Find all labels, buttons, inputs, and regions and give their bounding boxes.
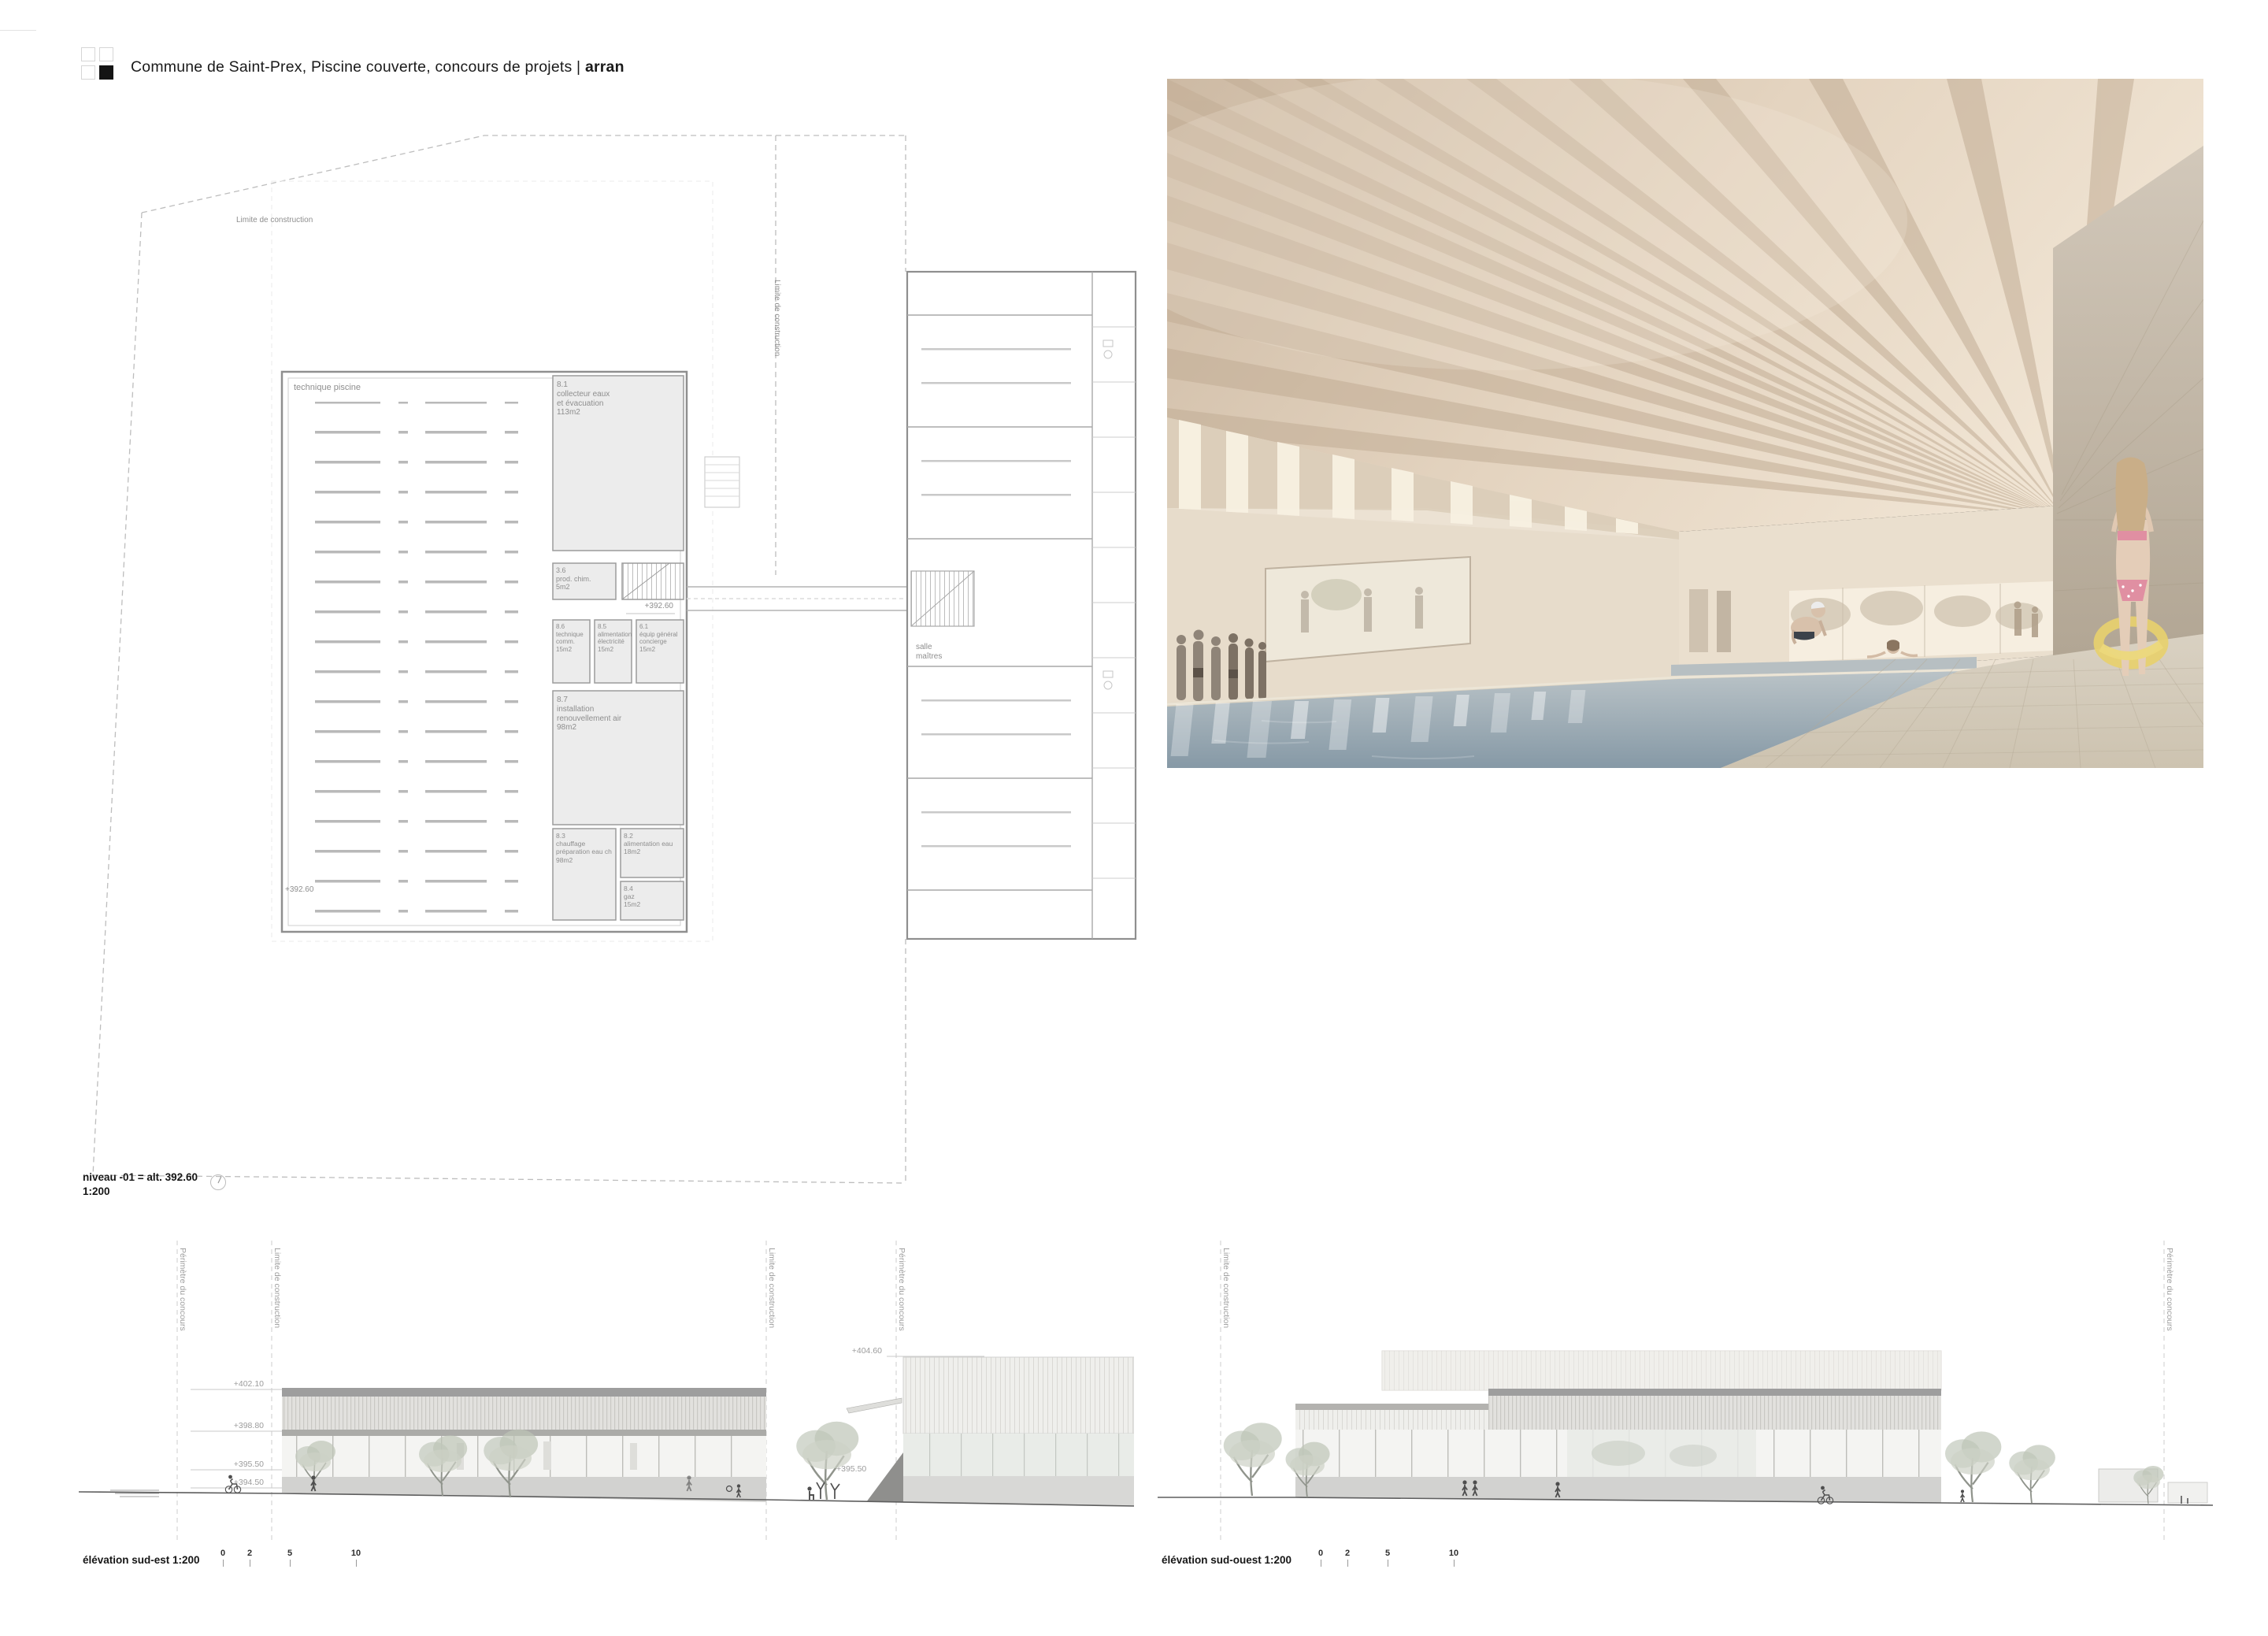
level-394-50: +394.50	[234, 1478, 264, 1487]
sitting-person	[807, 1486, 813, 1500]
guide-labels: Limite de construction Périmètre du conc…	[1221, 1248, 2174, 1331]
steps	[110, 1490, 159, 1497]
stairs	[622, 563, 684, 599]
plan-caption-line1: niveau -01 = alt. 392.60	[83, 1170, 198, 1185]
door	[1717, 591, 1731, 652]
guide-label: Périmètre du concours	[2165, 1248, 2174, 1331]
interior-rendering	[1167, 79, 2203, 768]
plan-caption: niveau -01 = alt. 392.60 1:200	[83, 1170, 198, 1199]
scale-tick: 2	[1338, 1549, 1357, 1558]
limite-label-right: Limite de construction	[772, 280, 781, 356]
room-label-6-1: 6.1 équip général concierge 15m2	[639, 623, 684, 653]
guide-label: Limite de construction	[272, 1248, 282, 1328]
tree	[1224, 1423, 1282, 1496]
tree	[2009, 1445, 2055, 1503]
level-402-10: +402.10	[234, 1379, 264, 1389]
guide-label: Limite de construction	[1221, 1248, 1231, 1328]
north-indicator	[209, 1174, 228, 1196]
elevation-se-caption: élévation sud-est 1:200	[83, 1553, 200, 1567]
level-marker-top: +392.60	[595, 602, 673, 611]
elevation-sud-est: Périmètre du concours Limite de construc…	[79, 1229, 1134, 1544]
canopy	[847, 1398, 902, 1413]
link-corridor	[687, 587, 907, 610]
vestiaires-building	[907, 272, 1136, 939]
room-label-8-6: 8.6 technique comm. 15m2	[556, 623, 591, 653]
elevation-so-caption: élévation sud-ouest 1:200	[1162, 1553, 1291, 1567]
crop-mark	[0, 30, 36, 31]
board-title-team: arran	[585, 58, 624, 76]
level-404-60: +404.60	[852, 1346, 882, 1356]
plan-drawing	[75, 118, 1193, 1197]
logo-square	[81, 47, 95, 61]
left-wall	[1167, 508, 1679, 703]
ramp-wedge	[866, 1452, 903, 1502]
room-label-8-4: 8.4 gaz 15m2	[624, 885, 679, 909]
back-wall	[1679, 506, 2057, 681]
salle-maitres-label: salle maîtres	[916, 643, 942, 662]
door	[1689, 589, 1708, 652]
pool-building-elevation-so	[1295, 1351, 1941, 1503]
scale-tick: 10	[346, 1549, 365, 1558]
room-label-8-2: 8.2 alimentation eau 18m2	[624, 832, 684, 856]
guide-label: Périmètre du concours	[178, 1248, 187, 1331]
competition-board: Commune de Saint-Prex, Piscine couverte,…	[0, 0, 2268, 1636]
scale-tick: 5	[1378, 1549, 1397, 1558]
board-title-main: Commune de Saint-Prex, Piscine couverte,…	[131, 58, 585, 76]
room-label-8-7: 8.7 installation renouvellement air 98m2	[557, 696, 675, 733]
basement-plan: Limite de construction Limite de constru…	[75, 118, 1193, 1197]
room-label-8-3: 8.3 chauffage préparation eau ch 98m2	[556, 832, 617, 864]
handstand-kids	[817, 1482, 839, 1499]
scale-tick: 5	[280, 1549, 299, 1558]
level-marker-bottom: +392.60	[285, 885, 313, 895]
scale-tick: 0	[1311, 1549, 1330, 1558]
guide-label: Limite de construction	[767, 1248, 776, 1328]
logo-square-filled	[99, 65, 113, 80]
small-stair	[705, 457, 739, 507]
pool-slab-supports	[315, 402, 408, 922]
scale-bar-so: 0 2 5 10	[1317, 1549, 1490, 1575]
level-395-50: +395.50	[234, 1460, 264, 1469]
tree	[1945, 1431, 2001, 1502]
room-label-3-6: 3.6 prod. chim. 5m2	[556, 566, 619, 592]
tree	[796, 1422, 858, 1500]
pedestrian	[1961, 1489, 1965, 1502]
hall-label: technique piscine	[294, 383, 361, 393]
room-label-8-5: 8.5 alimentation électricité 15m2	[598, 623, 632, 653]
logo-square	[99, 47, 113, 61]
limite-label-top: Limite de construction	[236, 216, 313, 225]
guide-labels: Périmètre du concours Limite de construc…	[178, 1248, 906, 1331]
logo-square	[81, 65, 95, 80]
salle-maitres-elevation	[847, 1357, 1134, 1506]
elevation-sud-ouest: Limite de construction Périmètre du conc…	[1158, 1229, 2213, 1544]
pool-slab-supports	[425, 402, 518, 922]
scale-bar-se: 0 2 5 10	[219, 1549, 392, 1575]
plan-caption-line2: 1:200	[83, 1185, 198, 1199]
guide-label: Périmètre du concours	[897, 1248, 906, 1331]
room-label-8-1: 8.1 collecteur eaux et évacuation 113m2	[557, 380, 675, 417]
scale-tick: 10	[1444, 1549, 1463, 1558]
arran-logo	[81, 47, 114, 80]
board-title: Commune de Saint-Prex, Piscine couverte,…	[131, 58, 624, 76]
scale-tick: 0	[213, 1549, 232, 1558]
scale-tick: 2	[240, 1549, 259, 1558]
level-398-80: +398.80	[234, 1421, 264, 1430]
